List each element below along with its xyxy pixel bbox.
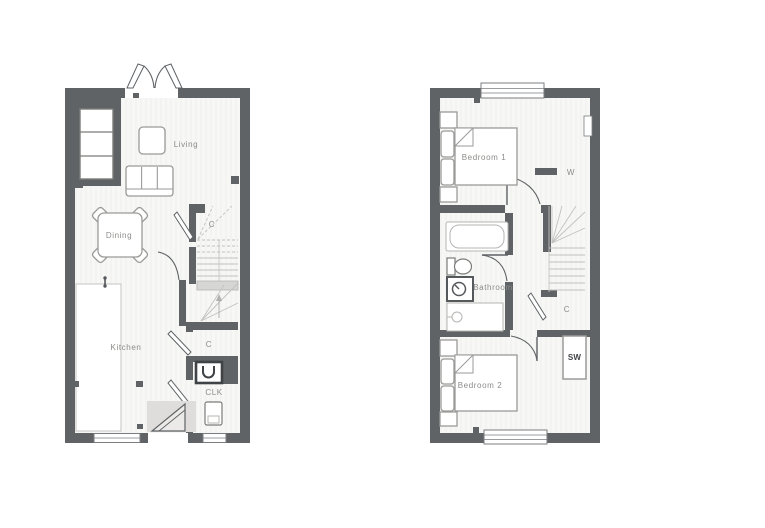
toilet	[196, 362, 222, 383]
first-door-stop-bottom	[473, 427, 479, 433]
bathtub	[446, 222, 508, 251]
patio-door-opening	[125, 88, 178, 98]
cloakroom-label: CLK	[205, 388, 222, 397]
socket-mark-a	[73, 381, 79, 387]
hall-cupboard-label: C	[206, 340, 212, 349]
door-stop-bottom	[137, 424, 143, 429]
first-floor-plan: Bedroom 1 W Bathroom C SW Bedroom 2	[430, 83, 600, 444]
entrance-opening	[148, 433, 188, 443]
floorplan-canvas: Living Dining Kitchen C C CLK	[0, 0, 765, 528]
living-room-label: Living	[174, 140, 199, 149]
coffee-table	[139, 127, 165, 154]
dining-room-label: Dining	[106, 231, 132, 240]
radiator-mark-right	[231, 176, 239, 184]
ground-floor-plan: Living Dining Kitchen C C CLK	[65, 64, 250, 443]
wardrobe-label: W	[567, 168, 575, 177]
bedroom2-window	[484, 430, 547, 444]
kitchen-counter	[76, 284, 121, 431]
stair-wall-b	[189, 247, 196, 284]
kitchen-window	[94, 434, 140, 443]
hall-wall-c2	[186, 356, 193, 380]
bedroom1-label: Bedroom 1	[462, 153, 507, 162]
bedroom2-label: Bedroom 2	[458, 381, 503, 390]
sofa	[126, 166, 173, 196]
socket-mark-b	[136, 381, 143, 387]
bathroom-north-wall	[440, 205, 505, 213]
french-doors	[127, 64, 182, 88]
stair-landing-tread	[197, 281, 238, 290]
radiator-mark-left	[75, 180, 83, 188]
vanity-basin	[447, 303, 503, 331]
landing-cupboard-label: C	[564, 305, 570, 314]
kitchen-label: Kitchen	[111, 343, 142, 352]
washbasin	[205, 402, 222, 425]
bathroom-label: Bathroom	[473, 283, 512, 292]
bedroom1-window	[481, 83, 544, 98]
landing-wall-stub	[541, 205, 551, 213]
wc-back-wall	[222, 362, 238, 384]
washing-machine-icon	[447, 277, 473, 301]
door-stop-top	[133, 93, 139, 98]
wall-notch	[584, 116, 592, 136]
floorplan-drawing: Living Dining Kitchen C C CLK	[0, 0, 765, 528]
shelf-unit	[80, 109, 113, 179]
stair-wall-stub	[189, 204, 205, 213]
stairs-cupboard-label: C	[209, 220, 215, 229]
cloak-window	[203, 434, 226, 443]
toilet-first-floor	[447, 258, 472, 275]
store-wardrobe-label: SW	[568, 353, 582, 362]
wardrobe-wall-stub	[535, 168, 557, 175]
hall-wall-c1	[186, 322, 193, 332]
landing-stair-wall	[543, 213, 551, 252]
cupboard-top-wall	[193, 322, 238, 330]
first-door-stop-top	[474, 98, 480, 103]
hall-wall-upper	[179, 280, 186, 326]
